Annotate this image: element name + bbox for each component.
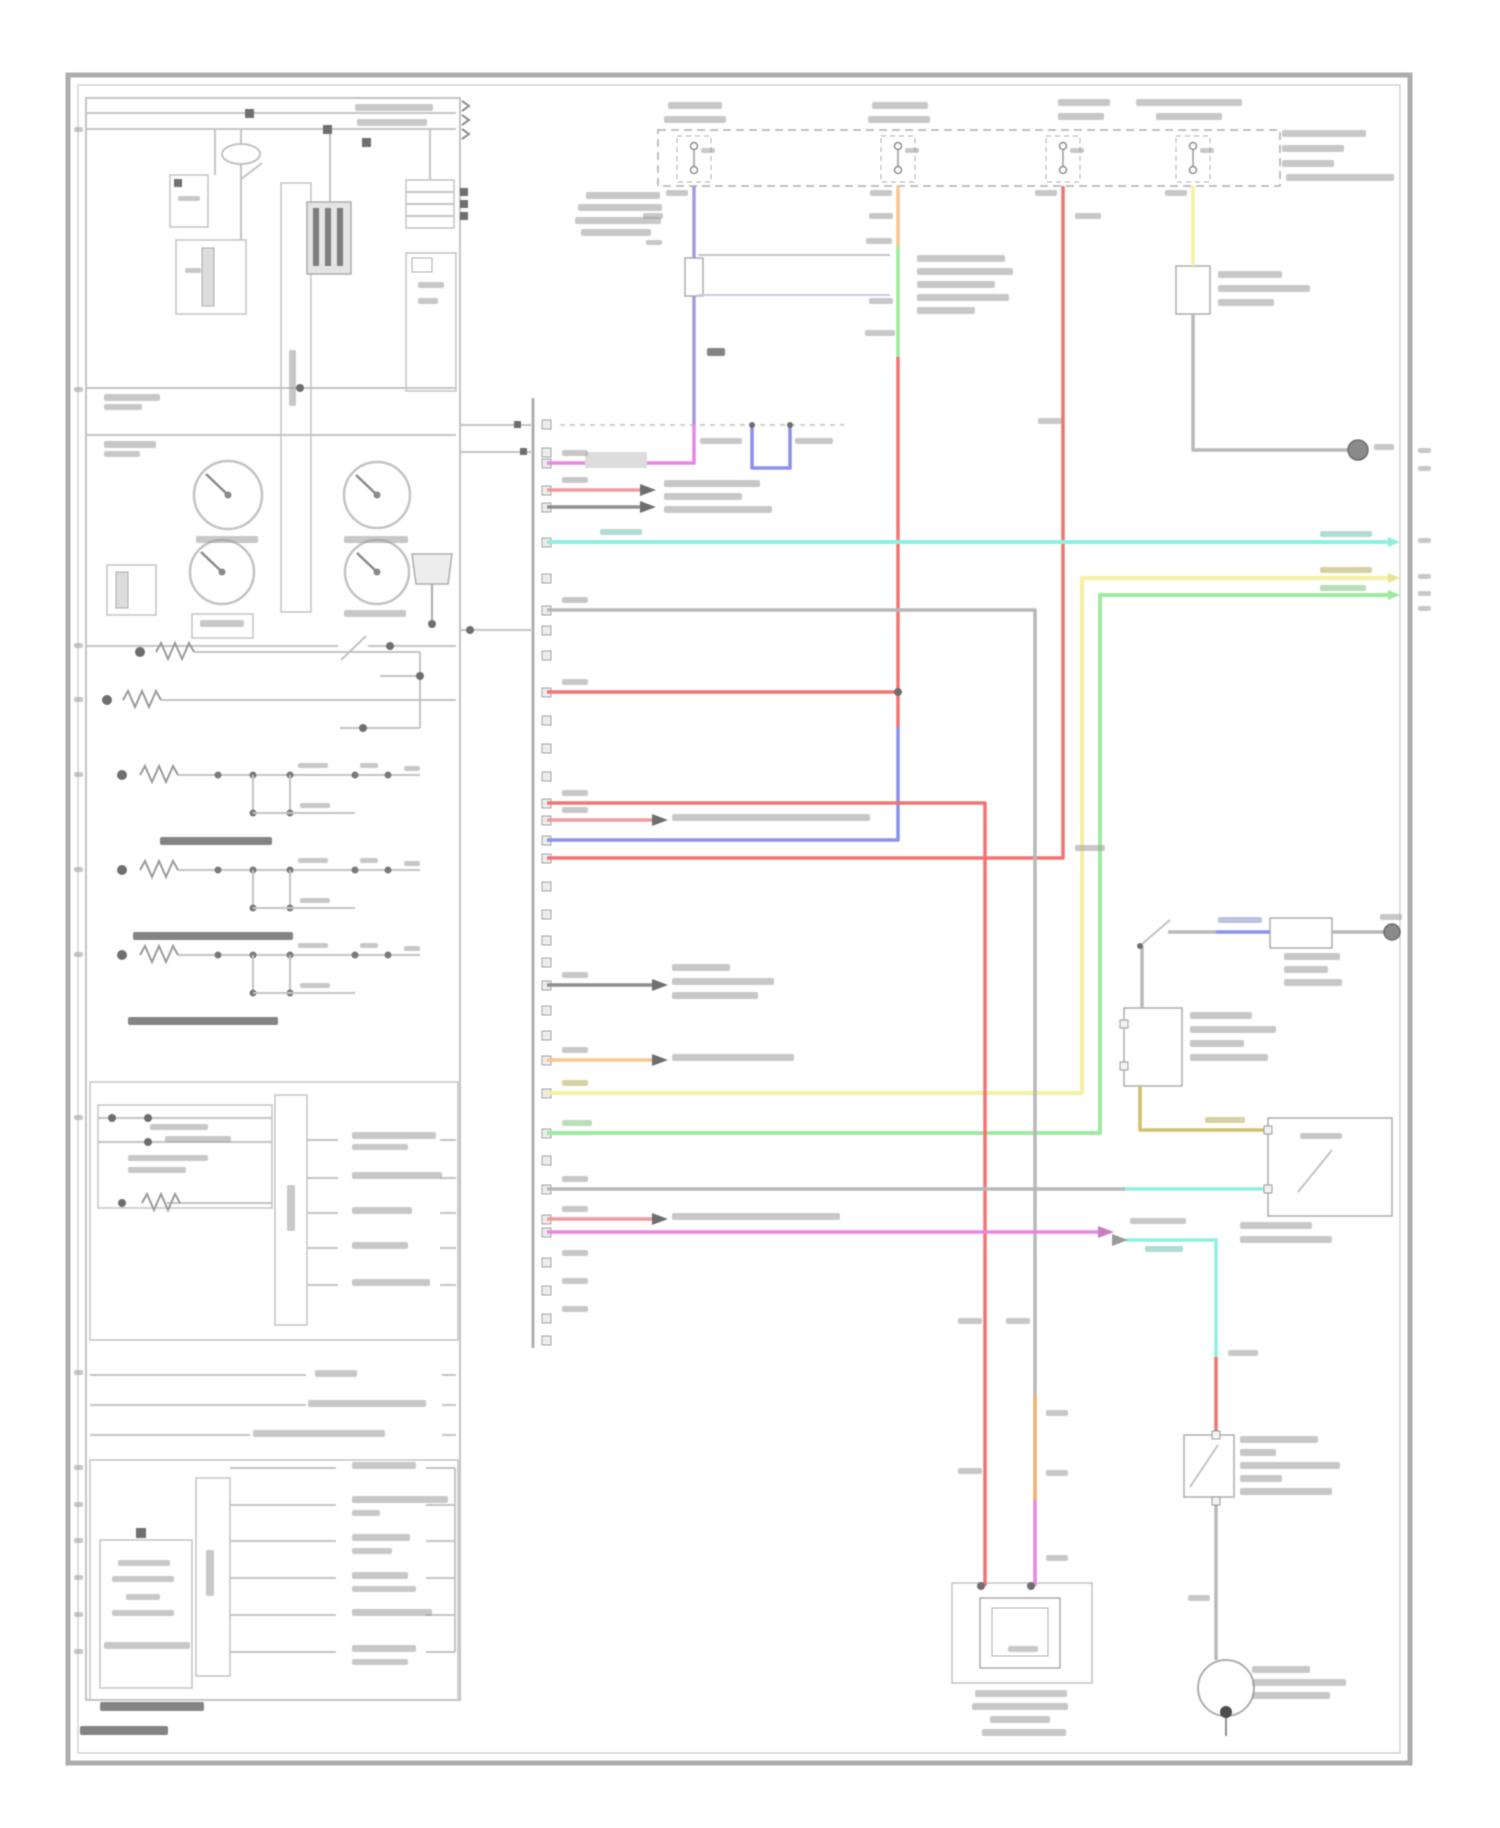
junction-dot [144,1138,152,1146]
wire-arrow-terminal [652,814,668,826]
component-box-c-sub [412,258,432,272]
component-box-c [406,253,456,391]
lamp-dot [352,772,359,779]
text-blob [74,643,83,648]
text-blob [74,1649,83,1654]
edge-chevron [462,129,469,139]
component-pin [1264,1185,1272,1193]
fuse-terminal [691,143,698,150]
text-blob [917,307,975,314]
ground-terminal-heater [1348,440,1368,460]
text-blob [795,438,833,444]
text-blob [1070,148,1084,153]
terminal-square [136,1528,146,1538]
connector-pin [542,626,551,635]
fuse-terminal [895,167,902,174]
structure-line [240,163,262,180]
text-blob [1286,174,1394,181]
text-blob [360,763,378,768]
text-blob [160,837,272,845]
structure-line [341,636,366,660]
text-blob [308,1400,426,1407]
text-blob [315,1370,357,1377]
structure-line [1190,1445,1218,1487]
connector-pin [542,1031,551,1040]
text-blob [869,213,893,219]
text-blob [672,964,730,971]
text-blob [1190,1012,1252,1019]
text-blob [74,1465,83,1470]
wire-code-label-box [585,452,647,468]
junction-dot [144,1114,152,1122]
text-blob [701,148,715,153]
text-blob [104,451,140,457]
structure-line [1142,920,1170,944]
connector-pin [542,882,551,891]
text-blob [196,536,258,543]
text-blob [344,536,408,543]
terminal-square [520,448,527,455]
text-blob [133,932,293,940]
page-border-inner [78,85,1400,1753]
text-blob [1058,99,1110,106]
gauge-needle-hub [225,492,232,499]
text-blob [112,1610,174,1616]
text-blob [562,790,588,796]
connector-pin [542,420,551,429]
text-blob [1075,213,1101,219]
text-blob [1190,1054,1268,1061]
text-blob [300,898,330,903]
text-blob [404,766,420,771]
text-blob [418,282,444,288]
text-blob [418,298,438,304]
text-blob [1374,444,1394,450]
component-box-d [107,565,156,615]
text-blob [206,1550,214,1596]
wire-arrow-terminal [1388,573,1400,583]
text-blob [958,1468,982,1474]
text-blob [1046,1470,1068,1476]
fuse-terminal [1190,167,1197,174]
text-blob [664,506,772,513]
text-blob [1284,979,1342,986]
text-blob [643,213,663,219]
filament-zigzag [156,643,194,659]
text-blob [112,1576,174,1582]
text-blob [104,441,156,448]
wire-arrow-terminal [1388,590,1400,600]
connector-pin [542,1258,551,1267]
text-blob [917,255,1005,262]
text-blob [917,294,1009,301]
text-blob [352,1586,416,1592]
text-blob [581,229,651,236]
connector-pin [542,574,551,583]
terminal-square [245,109,254,118]
gauge-needle-hub [219,569,226,576]
gray-down-run [547,610,1035,1395]
text-blob [562,679,588,685]
text-blob [357,119,427,126]
component-pin [1120,1020,1128,1028]
fuse-relay-box [658,130,1280,186]
component-box-b-bar [202,248,214,306]
connector-box-right [1124,1008,1182,1086]
text-blob [1218,917,1262,923]
filament-zigzag [140,766,178,782]
text-blob [1190,1040,1244,1047]
text-blob [80,1726,168,1735]
inline-component-yellow [1176,266,1210,314]
gauge-needle-hub [374,492,381,499]
text-blob [1240,1488,1332,1495]
text-blob [707,348,725,356]
text-blob [1145,1246,1183,1252]
text-blob [664,493,742,500]
filament-zigzag [123,691,161,707]
connector-pin [542,448,551,457]
heater-ground-gray [1193,314,1348,450]
terminal-square [362,138,371,147]
junction-dot [787,422,793,428]
text-blob [1418,591,1431,596]
text-blob [1156,113,1222,120]
page [0,0,1500,1828]
text-blob [1418,606,1431,611]
text-blob [562,597,588,603]
lamp-row-terminal [117,865,127,875]
text-blob [1282,160,1334,167]
junction-dot [1137,943,1143,949]
wire-arrow-terminal [1388,537,1400,547]
terminal-square [514,421,521,428]
junction-dot [428,620,436,628]
text-blob [1252,1666,1310,1673]
mid-blue-segment [547,727,898,840]
structure-line [1298,1150,1332,1192]
wire-arrow-terminal [640,484,656,496]
text-blob [150,1124,208,1130]
connector-pin [542,910,551,919]
text-blob [990,1716,1050,1723]
text-blob [74,1612,83,1617]
text-blob [253,1430,385,1437]
text-blob [1218,285,1310,292]
text-blob [300,983,330,988]
text-blob [562,1278,588,1284]
blue-jumper-u [752,425,790,468]
junction-dot [359,724,367,732]
wire-arrow-terminal [1112,1234,1128,1246]
text-blob [1130,1218,1186,1224]
connector-pin [542,958,551,967]
terminal-square [460,212,468,220]
text-blob [1320,531,1372,537]
text-blob [165,1136,231,1142]
connector-pin [542,1336,551,1345]
text-blob [870,190,892,196]
text-blob [352,1496,448,1503]
lamp-dot [385,772,392,779]
text-blob [562,1250,588,1256]
text-blob [1188,1595,1210,1601]
text-blob [562,1047,588,1053]
lamp-dot [385,952,392,959]
text-blob [298,943,328,948]
text-blob [128,1155,208,1161]
yellow-loop [547,578,1388,1093]
edge-chevron [462,101,469,111]
text-blob [128,1167,186,1173]
junction-dot [416,672,424,680]
text-blob [1252,1679,1346,1686]
text-blob [1418,466,1431,471]
text-blob [1200,148,1214,153]
text-blob [126,1594,160,1600]
text-blob [562,1306,588,1312]
text-blob [872,102,928,109]
text-blob [360,943,378,948]
fuel-flag-symbol [412,554,452,584]
connector-pin [542,1006,551,1015]
ground-terminal-932 [1384,924,1400,940]
text-blob [668,102,722,109]
lamp-row-terminal [117,950,127,960]
text-blob [1284,966,1328,973]
junction-dot [1027,1582,1035,1590]
component-pin [1264,1126,1272,1134]
connector-pin [542,716,551,725]
indicator-oval [222,144,260,164]
text-blob [1240,1236,1332,1243]
green-loop [547,595,1388,1133]
wire-arrow-terminal [652,979,668,991]
text-blob [352,1207,412,1214]
text-blob [1240,1462,1340,1469]
text-blob [352,1572,408,1579]
text-blob [664,116,726,123]
sender-ground-dot [1220,1706,1232,1718]
junction-dot [135,647,145,657]
text-blob [562,807,588,813]
text-blob [1418,538,1431,543]
terminal-square [323,125,332,134]
text-blob [352,1548,392,1554]
text-blob [104,404,142,410]
text-blob [958,1318,982,1324]
wire-arrow-terminal [652,1213,668,1225]
text-blob [672,978,774,985]
text-blob [1252,1692,1330,1699]
junction-dot [894,688,902,696]
text-blob [352,1462,416,1469]
text-blob [352,1534,410,1541]
text-blob [74,127,83,132]
terminal-square [460,188,468,196]
connector-pin [542,1286,551,1295]
text-blob [562,972,588,978]
text-blob [905,148,919,153]
text-blob [298,858,328,863]
text-blob [298,763,328,768]
text-blob [1380,914,1402,920]
text-blob [1218,271,1282,278]
text-blob [868,116,930,123]
lamp-dot [215,772,222,779]
text-blob [74,952,83,957]
text-blob [1046,1410,1068,1416]
switch-box-right [1184,1435,1234,1497]
wire-arrow-terminal [652,1054,668,1066]
text-blob [360,858,378,863]
connector-pin [542,772,551,781]
fuel-pump-red [547,803,985,1586]
text-blob [600,529,642,535]
junction-dot [102,695,112,705]
text-blob [562,1120,592,1126]
text-blob [352,1659,408,1665]
cyan-sender-run [1126,1240,1216,1357]
text-blob [352,1242,408,1249]
text-blob [562,1206,588,1212]
text-blob [1418,574,1431,579]
lamp-dot [215,867,222,874]
text-blob [700,438,742,444]
junction-dot [977,1582,985,1590]
connector-pin [542,1156,551,1165]
text-blob [1046,1555,1068,1561]
text-blob [1205,1117,1245,1123]
text-blob [352,1279,430,1286]
terminal-square [460,200,468,208]
text-blob [562,1080,588,1086]
lamp-dot [215,952,222,959]
gauge-needle-hub [374,569,381,576]
text-blob [1240,1436,1318,1443]
text-blob [352,1510,380,1516]
text-blob [1006,1318,1030,1324]
text-blob [672,1213,840,1220]
connector-pin [542,936,551,945]
text-blob [74,867,83,872]
lamp-dot [385,867,392,874]
text-blob [1008,1646,1038,1652]
text-blob [289,350,296,406]
text-blob [355,104,433,111]
connector-pin [542,651,551,660]
component-bar [313,208,319,266]
text-blob [104,1642,190,1649]
text-blob [100,1702,204,1711]
text-blob [178,196,200,201]
text-blob [975,1690,1067,1697]
olive-run [1140,1086,1268,1130]
text-blob [300,803,330,808]
text-blob [200,620,244,627]
text-blob [672,814,870,821]
text-blob [1165,190,1187,196]
terminal-square [174,179,182,187]
wiring-diagram [0,0,1500,1828]
junction-dot [466,626,474,634]
text-blob [74,1575,83,1580]
text-blob [1300,1133,1342,1139]
connector-pin [542,1314,551,1323]
fuse-terminal [1060,143,1067,150]
text-blob [344,610,406,617]
filament-zigzag [140,946,178,962]
text-blob [74,387,83,392]
text-blob [1320,585,1366,591]
text-blob [1058,113,1104,120]
fuse-terminal [691,167,698,174]
text-blob [1228,1350,1258,1356]
text-blob [578,204,662,211]
component-bar [337,208,343,266]
wire-arrow-terminal [1098,1226,1114,1238]
text-blob [404,946,420,951]
text-blob [972,1703,1068,1710]
text-blob [1035,190,1057,196]
text-blob [1418,448,1431,453]
text-blob [1284,953,1340,960]
connector-pin [542,744,551,753]
text-blob [1240,1475,1282,1482]
text-blob [1038,418,1062,424]
text-blob [74,1370,83,1375]
junction-dot [749,422,755,428]
junction-dot [108,1114,116,1122]
text-blob [917,281,995,288]
text-blob [104,394,160,401]
component-pin [1212,1497,1220,1505]
text-blob [404,861,420,866]
text-blob [666,190,688,196]
component-bar [325,208,331,266]
text-blob [562,450,588,456]
text-blob [1282,130,1366,137]
relay-component-932 [1270,918,1332,948]
junction-dot [296,384,304,392]
text-blob [1240,1222,1312,1229]
text-blob [74,1538,83,1543]
text-blob [352,1172,442,1179]
text-blob [866,238,892,244]
text-blob [352,1645,416,1652]
inline-component-purple [685,258,703,296]
component-pin [1120,1062,1128,1070]
edge-chevron [462,115,469,125]
text-blob [664,480,760,487]
text-blob [287,1185,295,1231]
text-blob [672,992,758,999]
text-blob [352,1144,408,1150]
text-blob [1218,299,1274,306]
fuse-terminal [895,143,902,150]
text-blob [74,1115,83,1120]
lamp-dot [352,867,359,874]
component-box-b2 [1268,1118,1392,1216]
text-blob [982,1729,1066,1736]
text-blob [185,268,201,273]
text-blob [672,1054,794,1061]
text-blob [1282,145,1344,152]
filament-zigzag [140,861,178,877]
text-blob [74,772,83,777]
text-blob [1240,1449,1276,1456]
text-blob [562,477,588,483]
